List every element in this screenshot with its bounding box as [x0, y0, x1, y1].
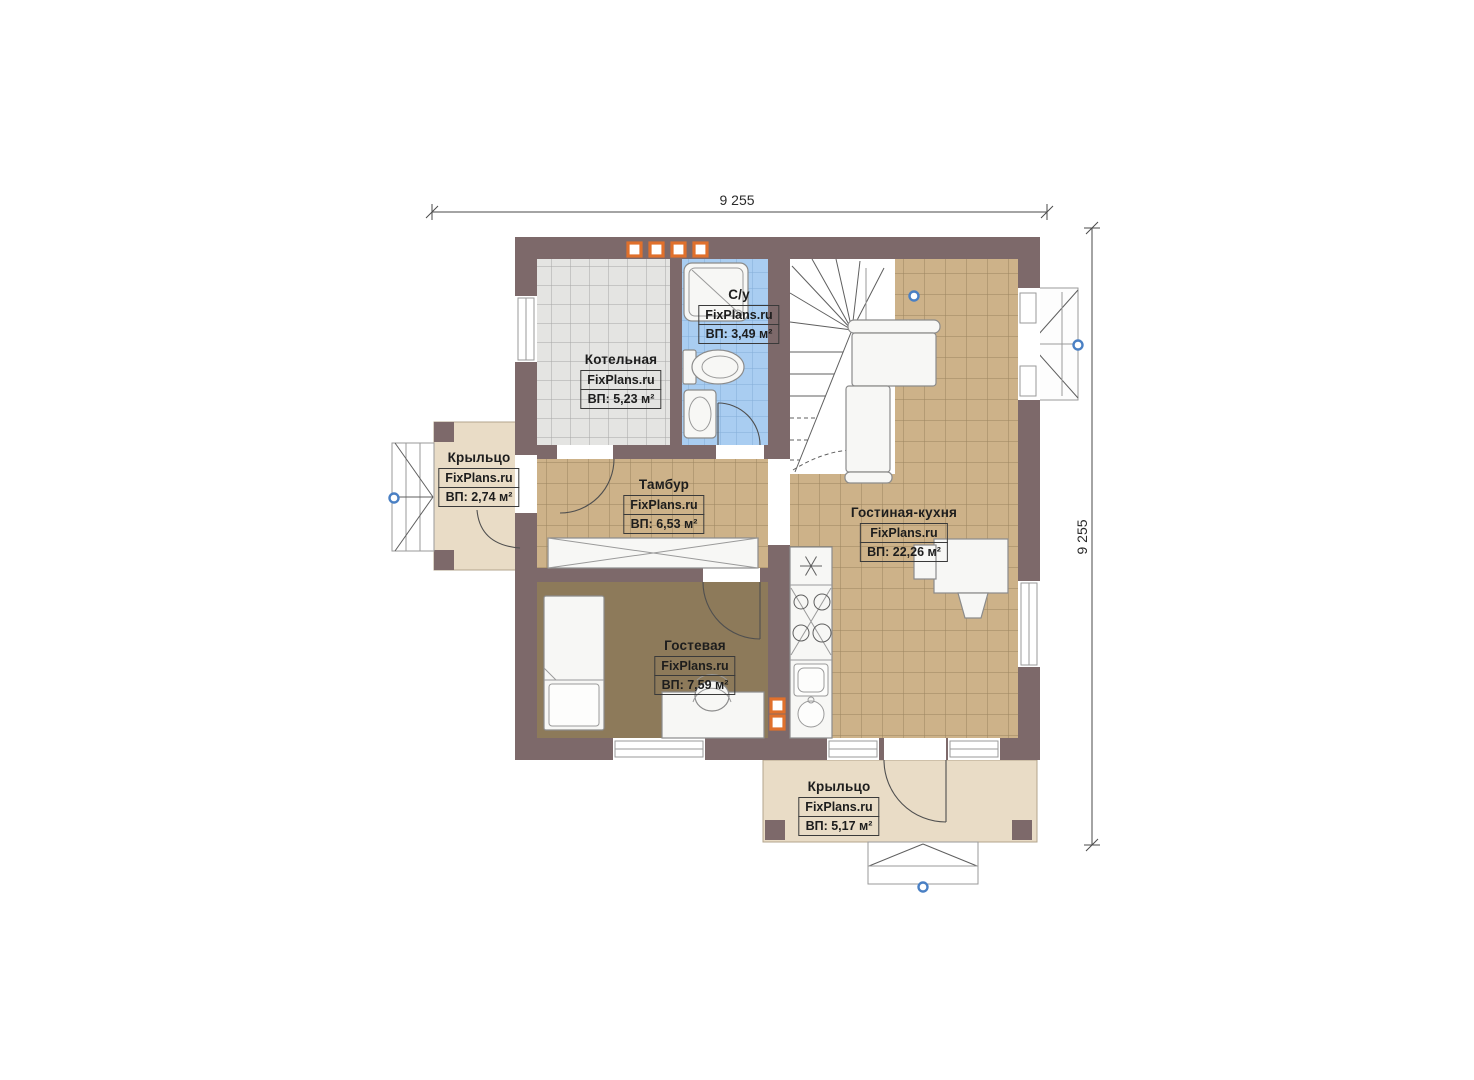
kitchen-sink: [794, 664, 828, 727]
room-area: ВП: 22,26 м²: [860, 542, 948, 562]
watermark-text: FixPlans.ru: [654, 656, 735, 676]
room-label-boiler-room: Котельная FixPlans.ru ВП: 5,23 м²: [580, 352, 661, 409]
porch-bottom-pillar: [1012, 820, 1032, 840]
dimension-height-label: 9 255: [1074, 519, 1090, 554]
room-label-guest-room: Гостевая FixPlans.ru ВП: 7,59 м²: [654, 638, 735, 695]
room-label-bathroom: С/у FixPlans.ru ВП: 3,49 м²: [698, 287, 779, 344]
room-info-box: FixPlans.ru ВП: 5,17 м²: [798, 797, 879, 836]
room-info-box: FixPlans.ru ВП: 22,26 м²: [860, 523, 948, 562]
window: [1018, 581, 1040, 667]
room-area: ВП: 5,17 м²: [798, 816, 879, 836]
watermark-text: FixPlans.ru: [698, 305, 779, 325]
bathroom-sink: [684, 390, 716, 438]
room-info-box: FixPlans.ru ВП: 7,59 м²: [654, 656, 735, 695]
room-name: Гостиная-кухня: [851, 505, 957, 520]
watermark-text: FixPlans.ru: [860, 523, 948, 543]
room-name: Крыльцо: [798, 779, 879, 794]
room-name: Котельная: [580, 352, 661, 367]
room-label-porch-bottom: Крыльцо FixPlans.ru ВП: 5,17 м²: [798, 779, 879, 836]
room-info-box: FixPlans.ru ВП: 2,74 м²: [438, 468, 519, 507]
room-name: Тамбур: [623, 477, 704, 492]
room-label-vestibule: Тамбур FixPlans.ru ВП: 6,53 м²: [623, 477, 704, 534]
room-name: С/у: [698, 287, 779, 302]
window: [613, 738, 705, 760]
porch-left-pillar: [434, 550, 454, 570]
toilet: [683, 350, 744, 384]
room-info-box: FixPlans.ru ВП: 3,49 м²: [698, 305, 779, 344]
watermark-text: FixPlans.ru: [438, 468, 519, 488]
dimension-width-label: 9 255: [719, 192, 754, 208]
room-area: ВП: 5,23 м²: [580, 389, 661, 409]
room-area: ВП: 3,49 м²: [698, 324, 779, 344]
room-label-porch-left: Крыльцо FixPlans.ru ВП: 2,74 м²: [438, 450, 519, 507]
bed: [544, 596, 604, 730]
room-label-living-kitchen: Гостиная-кухня FixPlans.ru ВП: 22,26 м²: [851, 505, 957, 562]
watermark-text: FixPlans.ru: [623, 495, 704, 515]
room-area: ВП: 2,74 м²: [438, 487, 519, 507]
room-area: ВП: 7,59 м²: [654, 675, 735, 695]
window: [515, 296, 537, 362]
room-name: Крыльцо: [438, 450, 519, 465]
room-info-box: FixPlans.ru ВП: 6,53 м²: [623, 495, 704, 534]
room-area: ВП: 6,53 м²: [623, 514, 704, 534]
watermark-text: FixPlans.ru: [798, 797, 879, 817]
porch-steps-bottom: [868, 842, 978, 884]
window: [827, 738, 879, 760]
watermark-text: FixPlans.ru: [580, 370, 661, 390]
floor-plan-page: 9 255 9 255 Котельная FixPlans.ru ВП: 5,…: [0, 0, 1474, 1080]
room-info-box: FixPlans.ru ВП: 5,23 м²: [580, 370, 661, 409]
floor-plan-drawing: [0, 0, 1474, 1080]
window: [948, 738, 1000, 760]
porch-bottom-pillar: [765, 820, 785, 840]
room-name: Гостевая: [654, 638, 735, 653]
wardrobe: [548, 538, 758, 568]
porch-left-pillar: [434, 422, 454, 442]
